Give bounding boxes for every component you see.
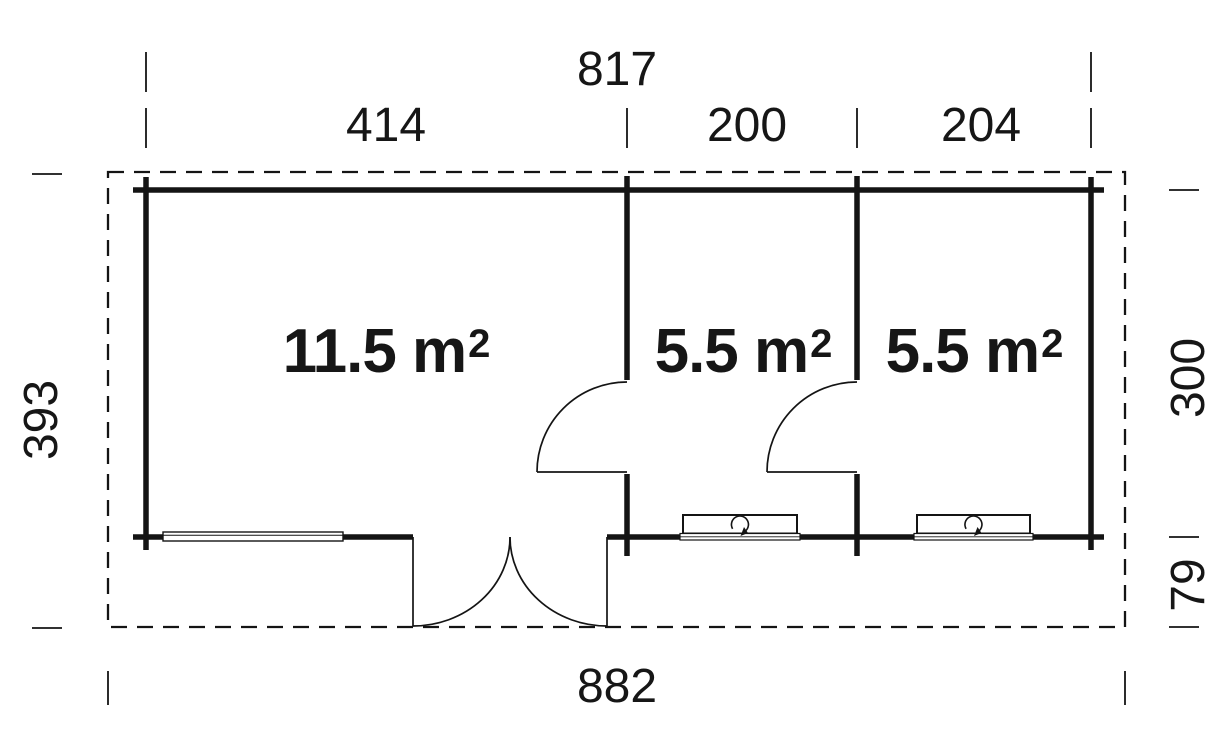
room-area-superscript: 2 xyxy=(810,322,831,366)
door-swing-arc xyxy=(537,382,627,472)
dimension-label-total-width: 817 xyxy=(577,46,657,94)
dimension-label-room3-width: 204 xyxy=(941,102,1021,150)
window-frame xyxy=(683,515,797,534)
dimension-label-room1-width: 414 xyxy=(346,102,426,150)
terrace-outline xyxy=(108,172,1125,627)
room-area-value: 11.5 m xyxy=(283,317,467,386)
dimension-label-house-depth: 300 xyxy=(1165,338,1213,418)
window-room-2 xyxy=(680,515,800,540)
dimension-label-room2-width: 200 xyxy=(707,102,787,150)
window-frame xyxy=(163,532,343,541)
interior-door-2 xyxy=(767,382,857,472)
dimension-label-outer-depth: 393 xyxy=(18,380,66,460)
double-door xyxy=(413,537,607,626)
room-area-superscript: 2 xyxy=(1041,322,1062,366)
room-area-value: 5.5 m xyxy=(655,317,809,386)
room-area-value: 5.5 m xyxy=(886,317,1040,386)
room-area-label-1: 11.5 m2 xyxy=(283,321,490,383)
window-frame xyxy=(917,515,1030,534)
room-area-superscript: 2 xyxy=(468,322,489,366)
room-area-label-2: 5.5 m2 xyxy=(655,321,832,383)
floor-plan: 817 414 200 204 393 300 79 882 11.5 m2 5… xyxy=(0,0,1231,731)
dimension-label-terrace-depth: 79 xyxy=(1165,558,1213,611)
door-swing-arc xyxy=(767,382,857,472)
room-area-label-3: 5.5 m2 xyxy=(886,321,1063,383)
interior-door-1 xyxy=(537,382,627,472)
window-room-3 xyxy=(914,515,1033,540)
door-swing-arc-left xyxy=(413,537,510,626)
window-room-1 xyxy=(163,532,343,541)
dimension-label-base-width: 882 xyxy=(577,663,657,711)
door-swing-arc-right xyxy=(510,537,607,626)
